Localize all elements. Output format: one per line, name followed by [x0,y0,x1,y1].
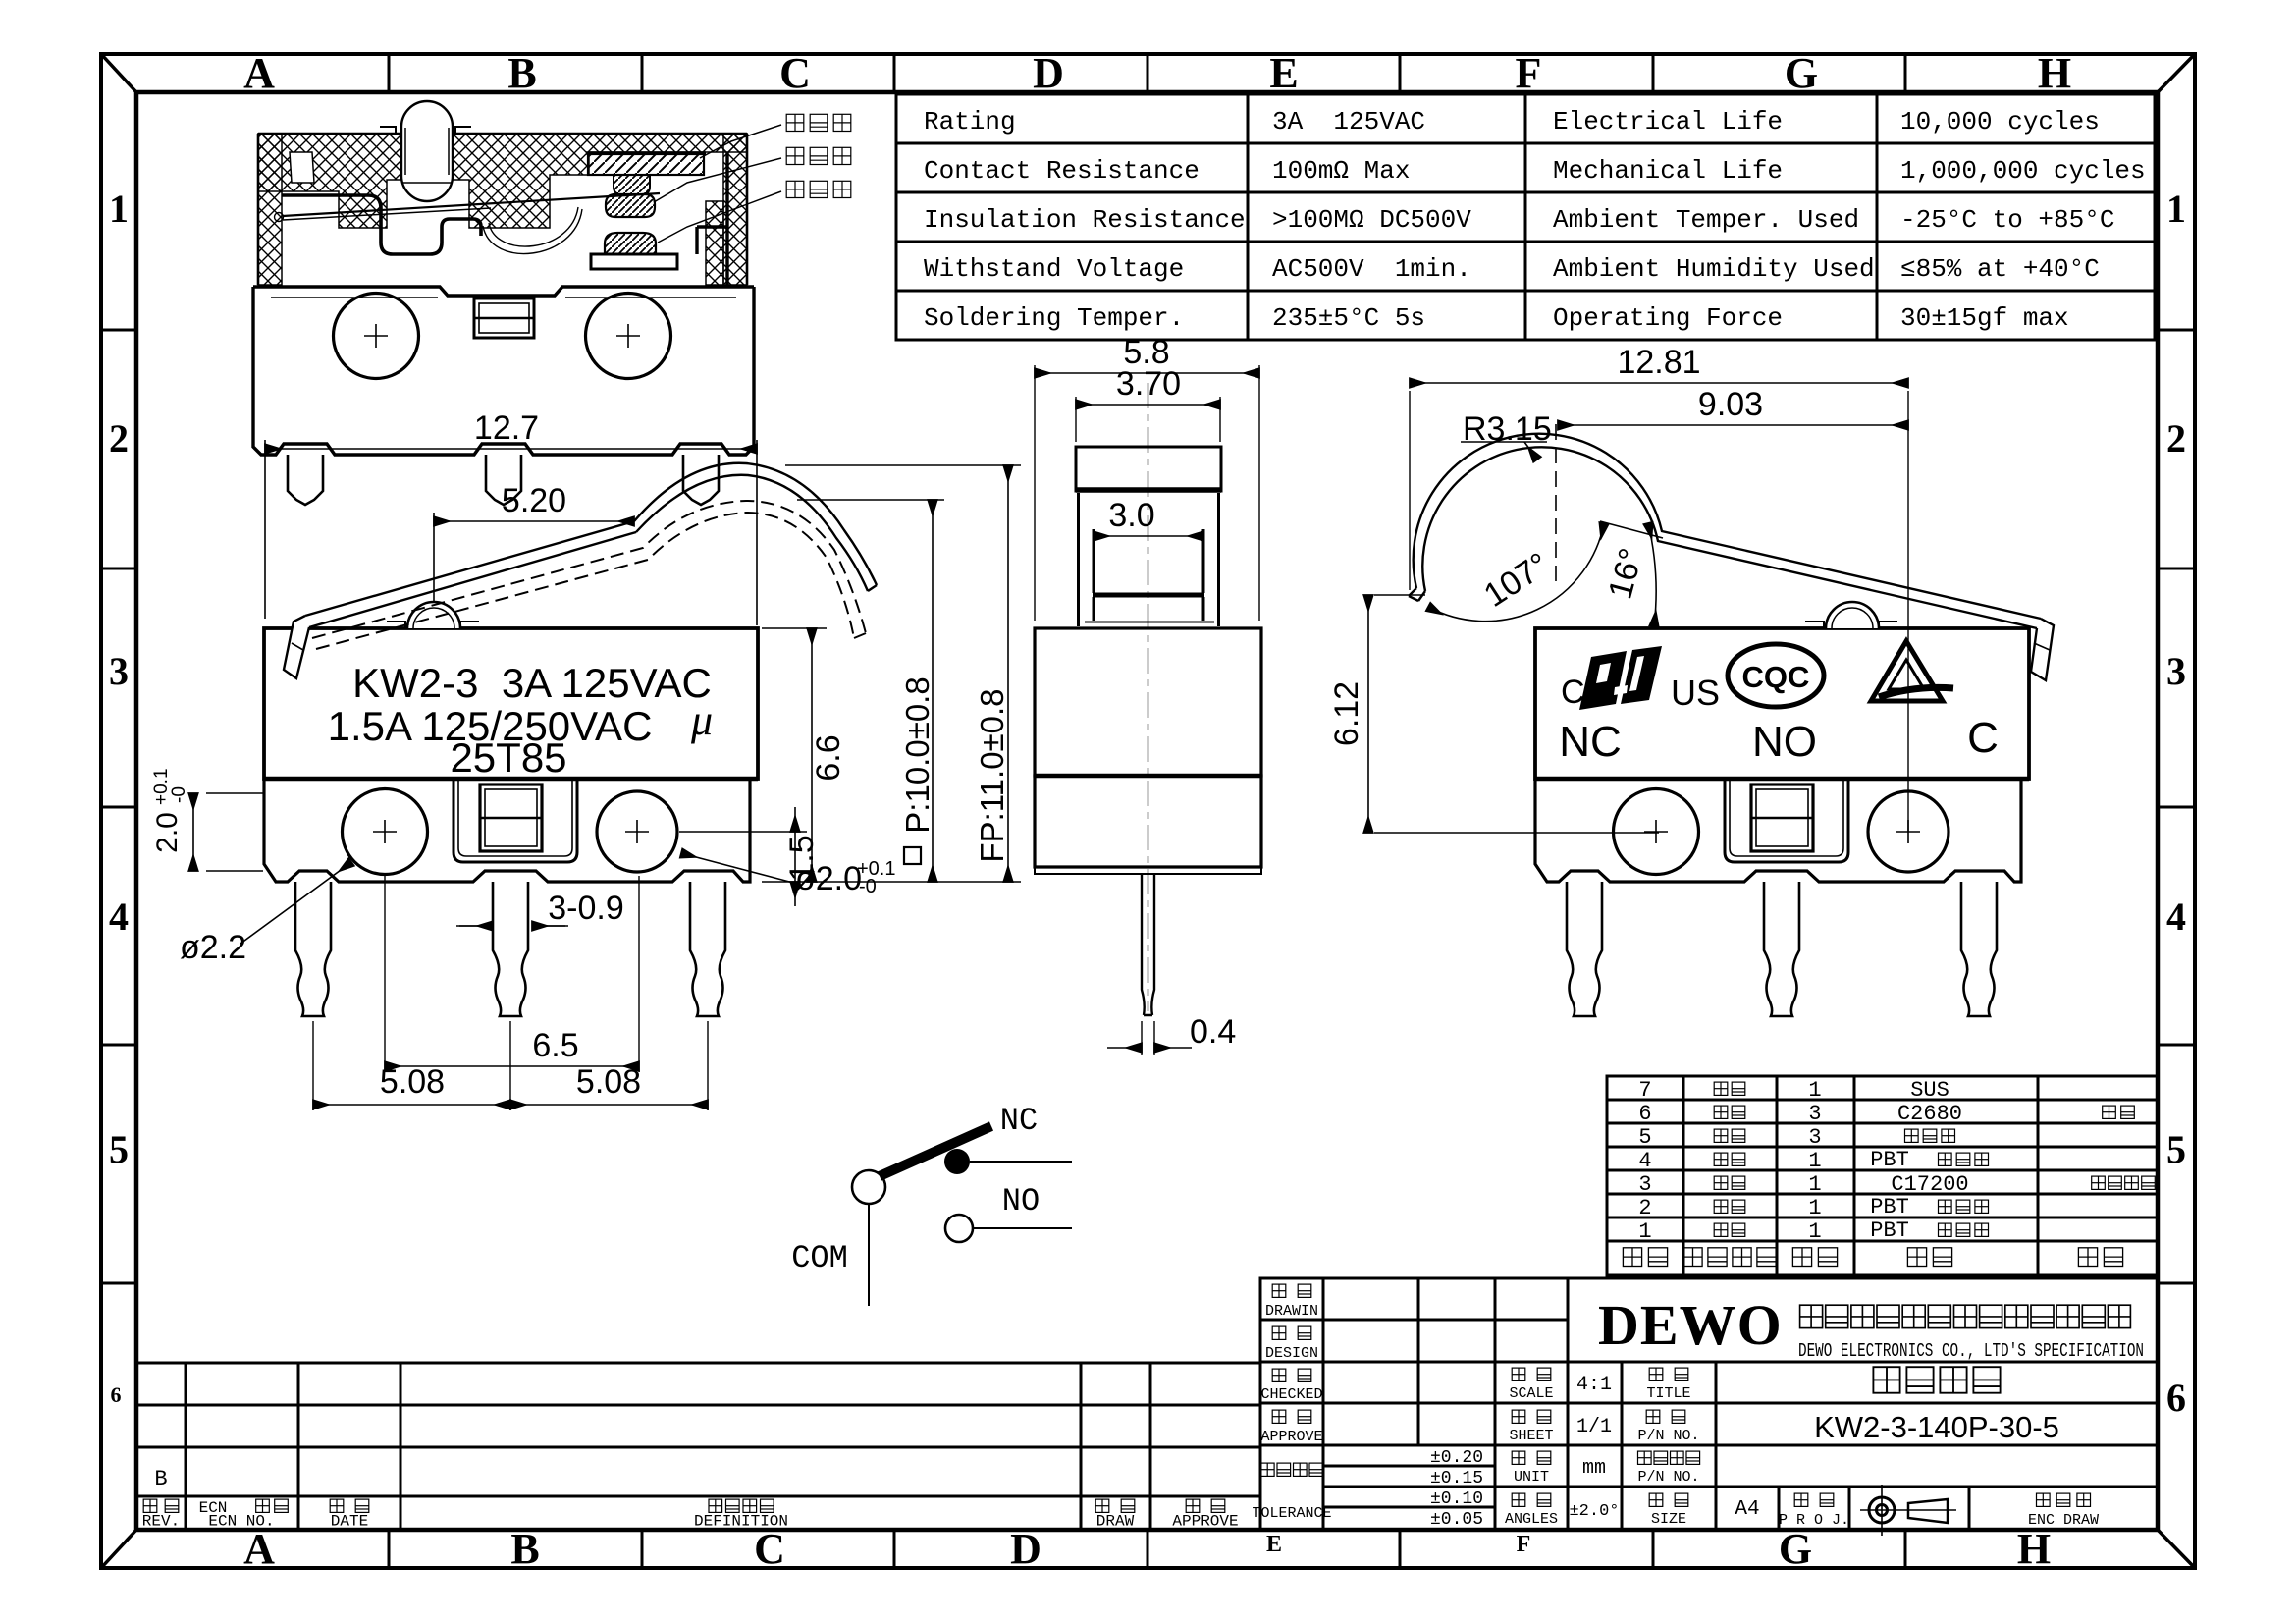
svg-text:CHECKED: CHECKED [1260,1386,1322,1403]
svg-text:B: B [510,1525,539,1573]
svg-text:D: D [1010,1525,1041,1573]
svg-text:H: H [2017,1525,2051,1573]
svg-text:10,000 cycles: 10,000 cycles [1900,107,2100,136]
svg-text:Contact Resistance: Contact Resistance [924,156,1200,186]
svg-text:NO: NO [1002,1183,1040,1219]
svg-text:4:1: 4:1 [1576,1374,1612,1396]
svg-text:Operating Force: Operating Force [1553,303,1783,333]
svg-text:TITLE: TITLE [1646,1385,1690,1402]
svg-text:±0.15: ±0.15 [1430,1469,1483,1488]
svg-text:3: 3 [2166,649,2186,693]
svg-text:CQC: CQC [1742,660,1810,694]
svg-text:5.08: 5.08 [576,1063,641,1101]
svg-text:1: 1 [1808,1196,1821,1220]
svg-text:6.5: 6.5 [532,1027,578,1064]
svg-text:Ambient Temper. Used: Ambient Temper. Used [1553,205,1859,235]
svg-text:3: 3 [109,649,129,693]
svg-text:5: 5 [109,1127,129,1171]
svg-text:KW2-3-140P-30-5: KW2-3-140P-30-5 [1814,1410,2059,1444]
svg-text:2.0: 2.0 [151,812,184,853]
svg-text:Soldering Temper.: Soldering Temper. [924,303,1184,333]
svg-text:SCALE: SCALE [1509,1385,1553,1402]
svg-text:100mΩ Max: 100mΩ Max [1272,156,1410,186]
svg-text:1: 1 [1808,1172,1821,1197]
svg-text:NC: NC [1000,1103,1038,1139]
svg-text:DRAWIN: DRAWIN [1265,1303,1318,1320]
svg-text:F: F [1517,1532,1531,1557]
svg-text:±0.20: ±0.20 [1430,1448,1483,1468]
svg-text:1: 1 [1808,1078,1821,1103]
svg-text:4: 4 [1638,1149,1651,1173]
svg-text:≤85% at +40°C: ≤85% at +40°C [1900,254,2100,284]
svg-text:G: G [1779,1525,1812,1573]
svg-text:B: B [154,1467,167,1491]
svg-text:SIZE: SIZE [1651,1511,1686,1528]
svg-text:0.4: 0.4 [1190,1013,1236,1051]
svg-text:APPROVE: APPROVE [1260,1429,1322,1445]
svg-text:-0: -0 [859,876,877,897]
svg-text:6: 6 [111,1382,122,1407]
svg-text:1,000,000 cycles: 1,000,000 cycles [1900,156,2146,186]
svg-text:3: 3 [1808,1125,1821,1150]
svg-text:APPROVE: APPROVE [1172,1513,1238,1531]
svg-text:FP:11.0±0.8: FP:11.0±0.8 [974,688,1010,862]
svg-text:6.12: 6.12 [1328,681,1365,746]
svg-text:25T85: 25T85 [450,734,566,781]
svg-text:PBT: PBT [1870,1195,1909,1219]
svg-text:DEWO: DEWO [1598,1293,1783,1357]
svg-text:B: B [507,49,536,97]
svg-text:DATE: DATE [331,1513,368,1531]
svg-text:1: 1 [1638,1219,1651,1244]
svg-text:ENC DRAW: ENC DRAW [2028,1512,2099,1529]
svg-text:±2.0°: ±2.0° [1569,1502,1619,1521]
svg-text:9.03: 9.03 [1698,386,1763,423]
svg-text:ANGLES: ANGLES [1505,1511,1558,1528]
svg-text:NO: NO [1752,718,1817,766]
svg-text:Rating: Rating [924,107,1016,136]
svg-text:SUS: SUS [1910,1078,1949,1103]
svg-text:C: C [779,49,811,97]
svg-text:Mechanical Life: Mechanical Life [1553,156,1783,186]
svg-text:ECN NO.: ECN NO. [208,1513,274,1531]
svg-text:1: 1 [1808,1149,1821,1173]
svg-text:P/N NO.: P/N NO. [1637,1469,1699,1486]
svg-text:AC500V 1min.: AC500V 1min. [1272,254,1471,284]
svg-text:KW2-3 3A 125VAC: KW2-3 3A 125VAC [352,660,712,706]
svg-text:TOLERANCE: TOLERANCE [1252,1505,1331,1522]
svg-text:7: 7 [1638,1078,1651,1103]
svg-text:2: 2 [1638,1196,1651,1220]
svg-text:5: 5 [2166,1127,2186,1171]
svg-text:1/1: 1/1 [1576,1416,1612,1438]
svg-text:D: D [1033,49,1064,97]
svg-text:ø2.2: ø2.2 [180,929,246,966]
svg-text:3A 125VAC: 3A 125VAC [1272,107,1425,136]
svg-text:PBT: PBT [1870,1148,1909,1172]
svg-text:Insulation Resistance: Insulation Resistance [924,205,1246,235]
svg-text:12.7: 12.7 [474,409,539,447]
svg-text:Withstand Voltage: Withstand Voltage [924,254,1184,284]
svg-text:PBT: PBT [1870,1218,1909,1243]
svg-text:3.0: 3.0 [1108,497,1154,534]
svg-text:C17200: C17200 [1891,1172,1968,1197]
svg-text:US: US [1671,673,1720,713]
svg-text:C: C [754,1525,785,1573]
svg-text:30±15gf max: 30±15gf max [1900,303,2069,333]
svg-text:6.6: 6.6 [810,734,847,781]
svg-text:-0: -0 [169,786,189,803]
svg-text:A4: A4 [1735,1498,1759,1521]
svg-text:DESIGN: DESIGN [1265,1345,1318,1362]
svg-text:4: 4 [2166,894,2186,939]
svg-text:3: 3 [1638,1172,1651,1197]
svg-text:H: H [2038,49,2071,97]
svg-text:NC: NC [1559,718,1622,766]
svg-text:1: 1 [1808,1219,1821,1244]
svg-text:5: 5 [1638,1125,1651,1150]
svg-text:P/N NO.: P/N NO. [1637,1428,1699,1444]
svg-text:μ: μ [690,696,713,744]
svg-text:SHEET: SHEET [1509,1428,1553,1444]
svg-text:3.70: 3.70 [1116,365,1181,403]
svg-text:DEWO ELECTRONICS CO., LTD'S SP: DEWO ELECTRONICS CO., LTD'S SPECIFICATIO… [1798,1340,2144,1362]
svg-text:±0.05: ±0.05 [1430,1510,1483,1530]
svg-text:P R O J.: P R O J. [1779,1512,1849,1529]
svg-text:A: A [243,1525,275,1573]
svg-text:1: 1 [109,187,129,231]
svg-text:4: 4 [109,894,129,939]
svg-text:UNIT: UNIT [1514,1469,1549,1486]
svg-text:5.08: 5.08 [380,1063,445,1101]
svg-text:3-0.9: 3-0.9 [548,890,624,927]
svg-text:P:10.0±0.8: P:10.0±0.8 [899,676,935,833]
svg-text:1: 1 [2166,187,2186,231]
svg-text:DRAW: DRAW [1096,1513,1135,1531]
svg-text:mm: mm [1582,1457,1606,1480]
svg-text:REV.: REV. [142,1513,180,1531]
svg-text:235±5°C 5s: 235±5°C 5s [1272,303,1425,333]
svg-text:F: F [1516,49,1542,97]
svg-text:E: E [1269,49,1298,97]
svg-text:Ambient Humidity Used: Ambient Humidity Used [1553,254,1875,284]
svg-text:6: 6 [1638,1102,1651,1126]
svg-text:C: C [1967,714,1999,762]
svg-text:±0.10: ±0.10 [1430,1489,1483,1509]
svg-text:12.81: 12.81 [1617,344,1700,381]
svg-text:2: 2 [109,416,129,460]
svg-text:5.20: 5.20 [502,482,566,519]
svg-text:-25°C to +85°C: -25°C to +85°C [1900,205,2114,235]
svg-text:>100MΩ DC500V: >100MΩ DC500V [1272,205,1471,235]
svg-text:A: A [243,49,275,97]
svg-text:C2680: C2680 [1897,1102,1962,1126]
svg-text:G: G [1785,49,1818,97]
svg-text:Electrical Life: Electrical Life [1553,107,1783,136]
svg-text:2: 2 [2166,416,2186,460]
svg-text:E: E [1266,1532,1282,1557]
svg-text:3: 3 [1808,1102,1821,1126]
svg-text:6: 6 [2166,1376,2186,1420]
svg-text:DEFINITION: DEFINITION [694,1513,788,1531]
svg-text:ø2.0: ø2.0 [795,860,862,897]
svg-text:COM: COM [791,1240,848,1276]
